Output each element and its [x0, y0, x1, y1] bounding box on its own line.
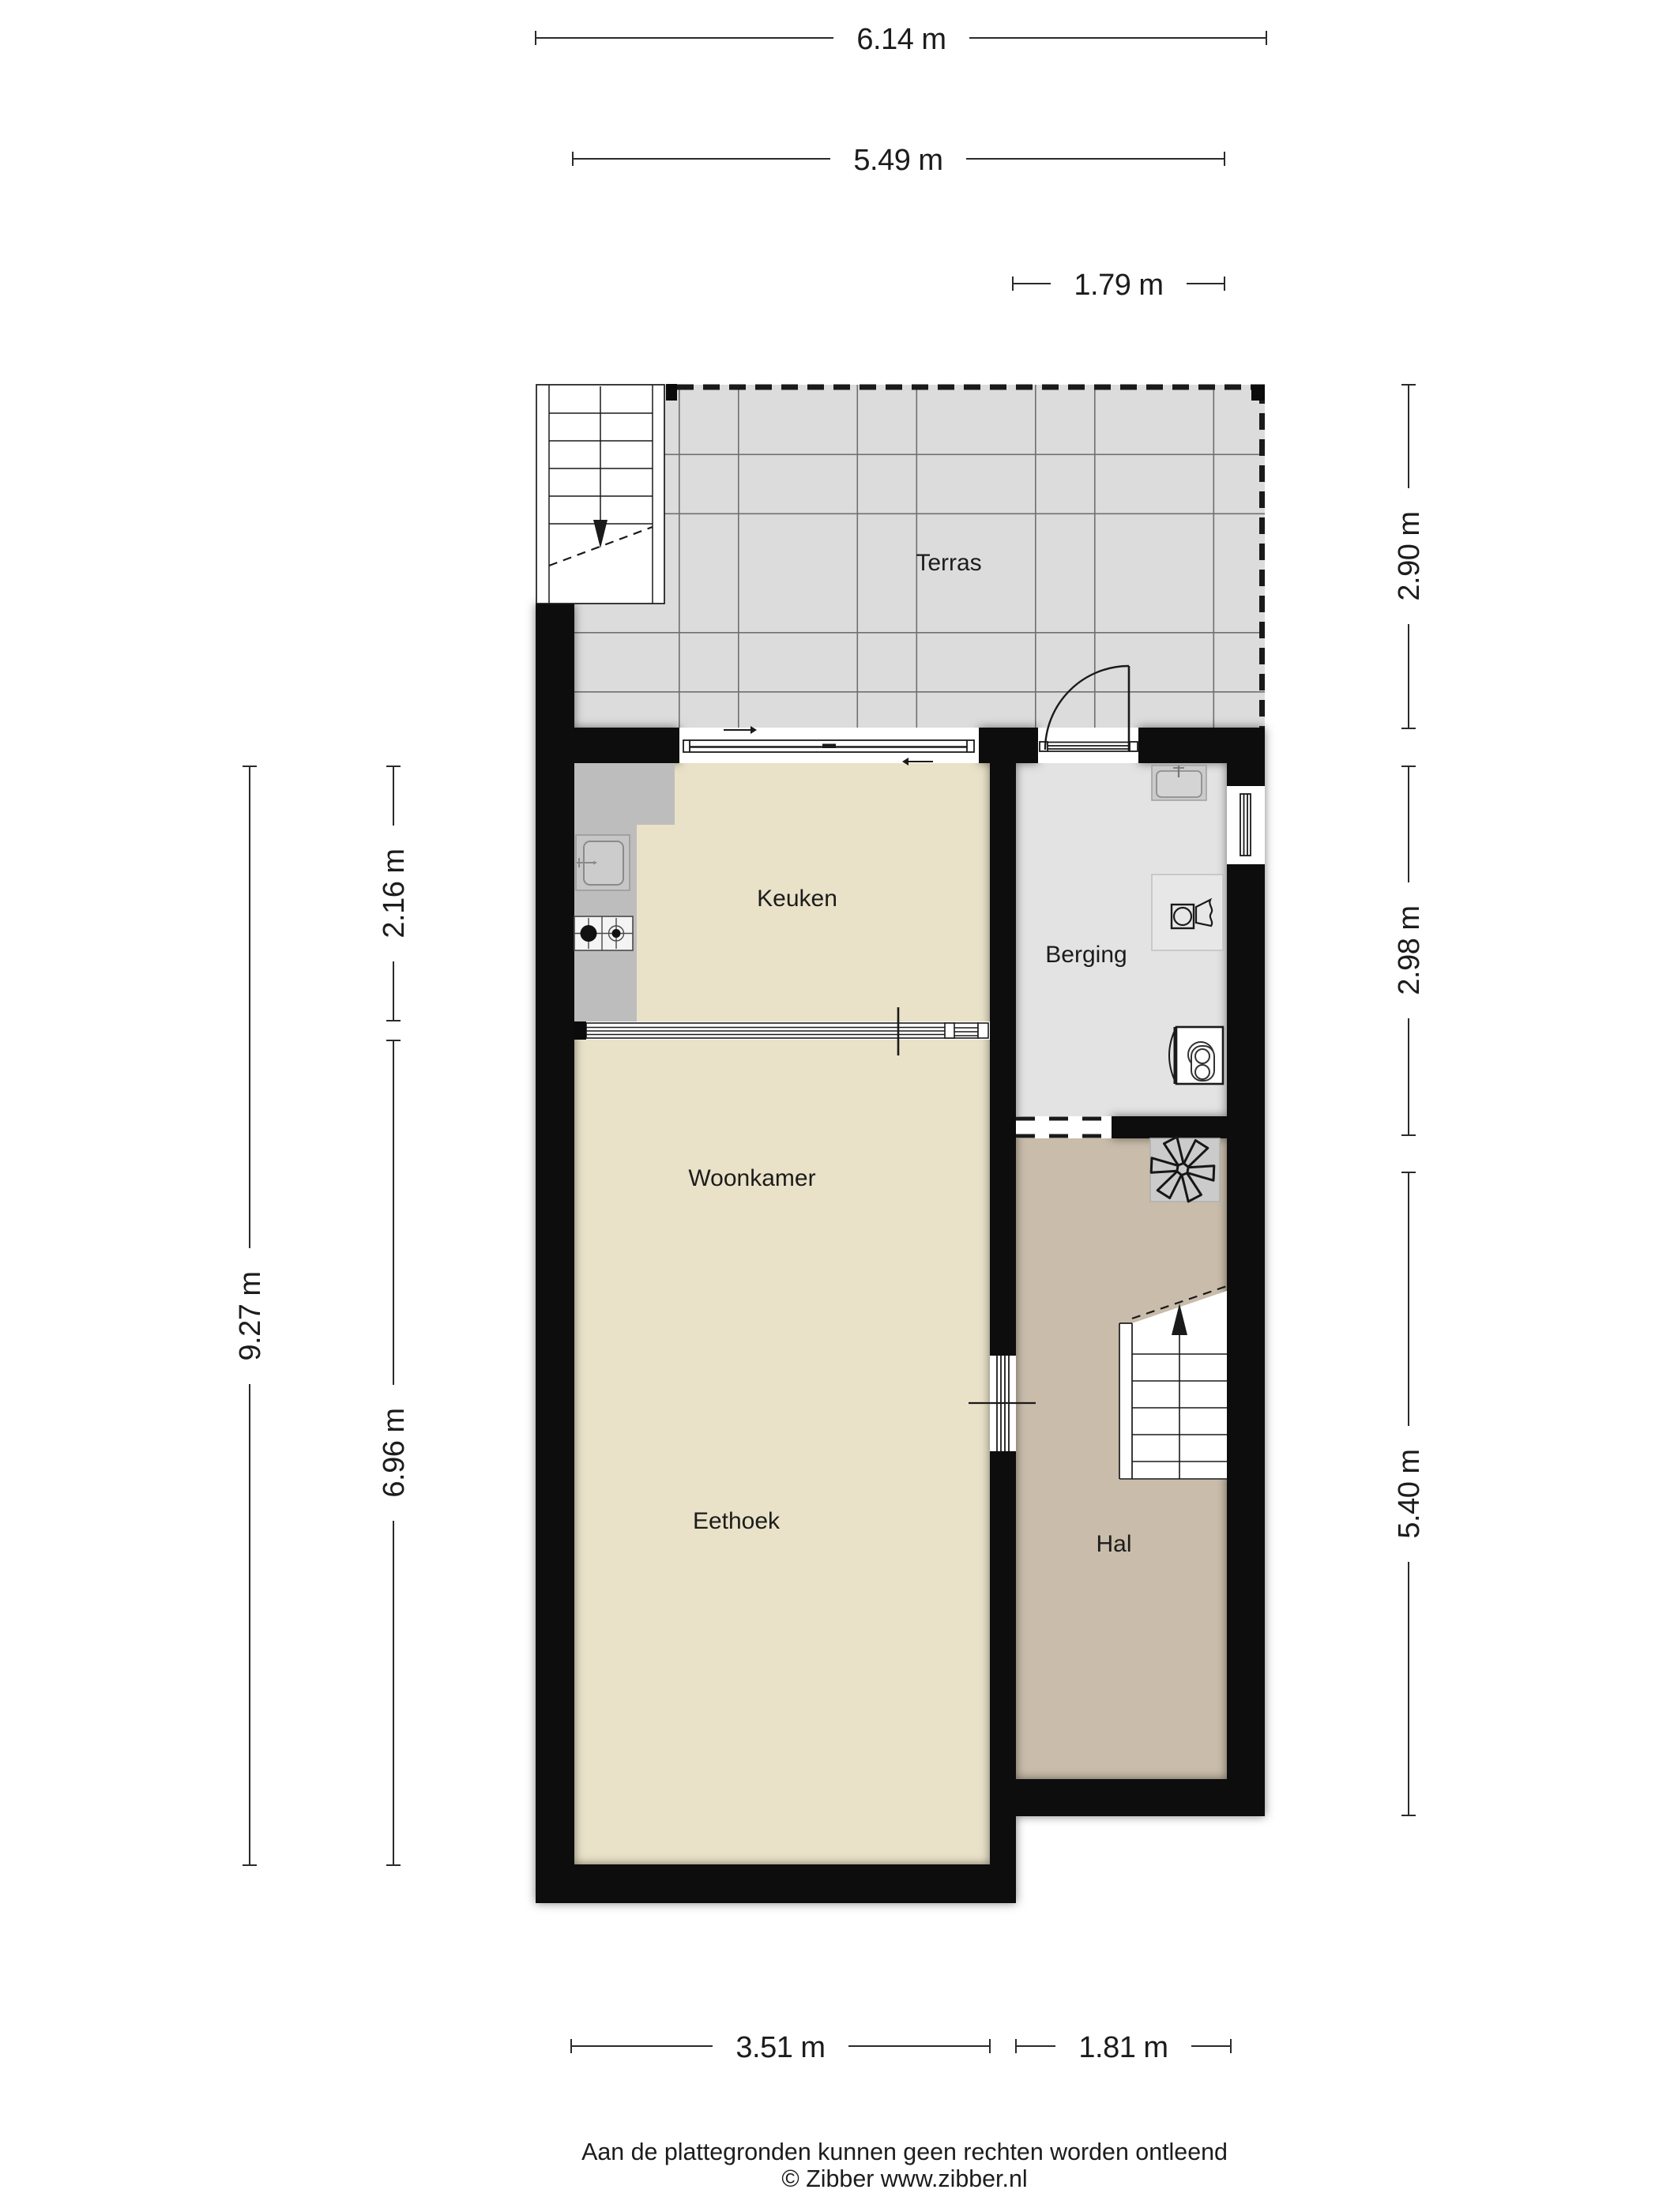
svg-text:Terras: Terras	[916, 550, 981, 576]
svg-text:1.81 m: 1.81 m	[1078, 2031, 1168, 2064]
svg-text:© Zibber www.zibber.nl: © Zibber www.zibber.nl	[781, 2165, 1027, 2192]
svg-text:2.16 m: 2.16 m	[378, 848, 411, 938]
svg-text:5.49 m: 5.49 m	[853, 144, 942, 177]
svg-text:2.98 m: 2.98 m	[1393, 905, 1426, 995]
svg-text:6.14 m: 6.14 m	[856, 23, 946, 56]
svg-text:6.96 m: 6.96 m	[378, 1408, 411, 1497]
svg-text:Eethoek: Eethoek	[693, 1508, 781, 1534]
svg-text:Berging: Berging	[1045, 942, 1127, 968]
svg-text:2.90 m: 2.90 m	[1393, 511, 1426, 600]
svg-text:Hal: Hal	[1096, 1531, 1131, 1557]
svg-text:3.51 m: 3.51 m	[735, 2031, 825, 2064]
svg-text:Aan de plattegronden kunnen ge: Aan de plattegronden kunnen geen rechten…	[581, 2139, 1228, 2165]
svg-text:5.40 m: 5.40 m	[1393, 1449, 1426, 1538]
svg-text:Woonkamer: Woonkamer	[688, 1165, 815, 1191]
svg-text:Keuken: Keuken	[757, 886, 837, 912]
svg-text:1.79 m: 1.79 m	[1074, 269, 1163, 302]
svg-text:9.27 m: 9.27 m	[234, 1271, 267, 1360]
